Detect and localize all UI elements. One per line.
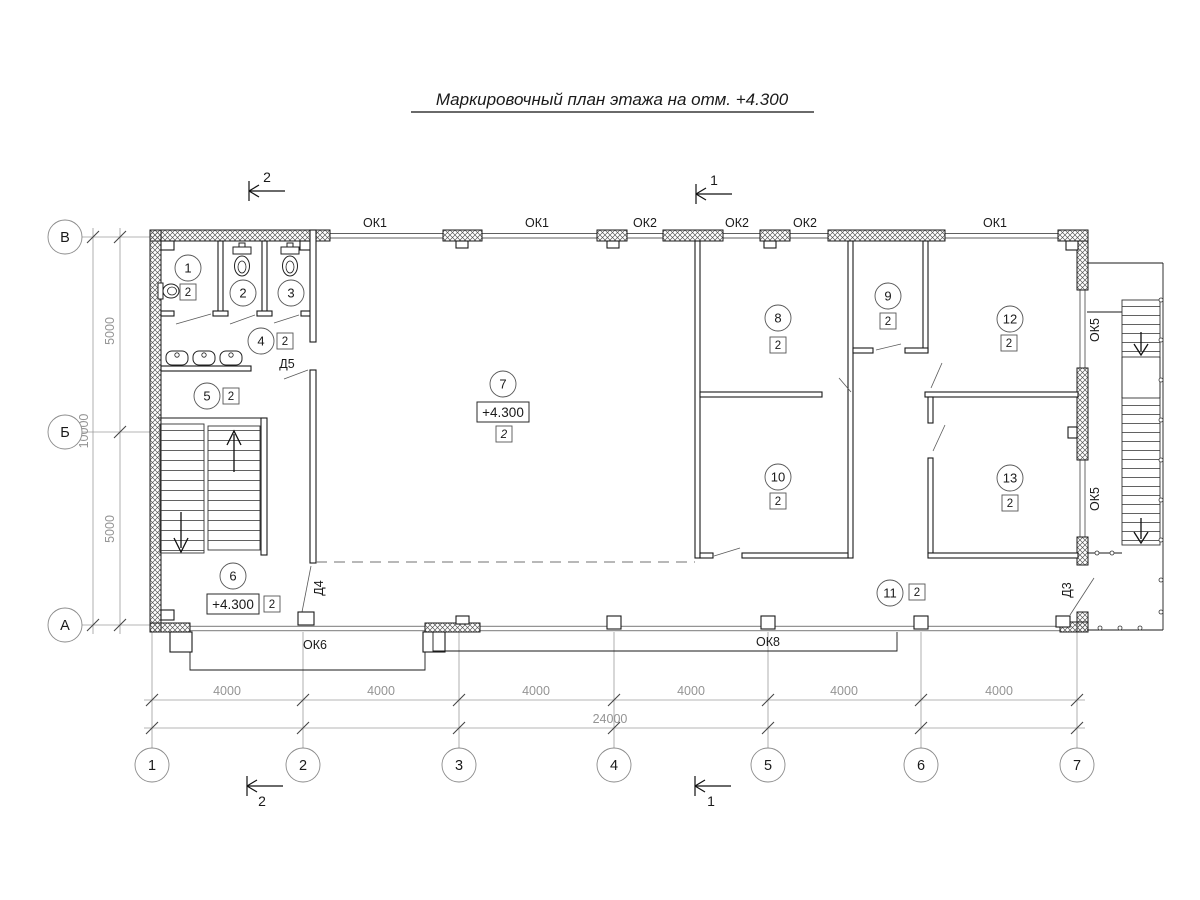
pier [1066, 241, 1078, 250]
bottom-wall-seg [150, 623, 190, 632]
svg-text:5: 5 [764, 758, 772, 774]
toilet-icon [281, 243, 299, 276]
window-label-ok2: ОК2 [793, 216, 817, 230]
svg-text:7: 7 [499, 377, 506, 392]
svg-text:3: 3 [287, 286, 294, 301]
pier [764, 241, 776, 248]
svg-text:2: 2 [1006, 338, 1012, 350]
room-label-10: 10 2 [765, 464, 791, 509]
window-label-ok6: ОК6 [303, 638, 327, 652]
svg-text:2: 2 [269, 599, 275, 611]
door-leaf-d3 [1056, 616, 1070, 627]
top-wall-pier [597, 230, 627, 241]
column [761, 616, 775, 629]
svg-text:5: 5 [203, 389, 210, 404]
window-label-ok1: ОК1 [983, 216, 1007, 230]
sink-icon [166, 351, 188, 365]
right-wall-seg [1077, 368, 1088, 460]
pier [161, 241, 174, 250]
svg-text:2: 2 [239, 286, 246, 301]
window-label-ok1: ОК1 [525, 216, 549, 230]
top-wall-corner [1058, 230, 1088, 241]
svg-text:3: 3 [455, 758, 463, 774]
svg-text:2: 2 [228, 391, 234, 403]
svg-text:В: В [60, 230, 70, 246]
section-mark-2-top: 2 [249, 169, 285, 201]
svg-text:4: 4 [257, 334, 264, 349]
axis-col-6: 6 [904, 748, 938, 782]
svg-text:2: 2 [914, 587, 920, 599]
section-mark-2-bottom: 2 [247, 776, 283, 809]
svg-text:10: 10 [771, 470, 785, 485]
room-label-8: 8 2 [765, 305, 791, 353]
floor-plan-svg: Маркировочный план этажа на отм. +4.300 … [0, 0, 1200, 900]
section-mark-1-bottom: 1 [695, 776, 731, 809]
dim-4000-1: 4000 [213, 684, 241, 698]
drawing-sheet: Маркировочный план этажа на отм. +4.300 … [0, 0, 1200, 900]
section-mark-1-top: 1 [696, 172, 732, 204]
door-label-d5: Д5 [279, 357, 294, 371]
opening-labels: ОК1 ОК1 ОК2 ОК2 ОК2 ОК1 ОК5 ОК5 ОК6 ОК8 … [279, 216, 1102, 652]
room-label-13: 13 2 [997, 465, 1023, 511]
window-label-ok2: ОК2 [633, 216, 657, 230]
svg-text:2: 2 [263, 169, 271, 185]
svg-text:2: 2 [299, 758, 307, 774]
dim-24000-total: 24000 [593, 712, 628, 726]
svg-text:12: 12 [1003, 312, 1017, 327]
pier [1068, 427, 1077, 438]
svg-text:13: 13 [1003, 471, 1017, 486]
svg-text:1: 1 [148, 758, 156, 774]
svg-text:2: 2 [185, 287, 191, 299]
porch-and-canopy [170, 632, 897, 670]
window-label-ok1: ОК1 [363, 216, 387, 230]
sink-icon [220, 351, 242, 365]
elevation-mark: +4.300 [482, 405, 524, 420]
room-label-9: 9 2 [875, 283, 901, 329]
toilet-icon [158, 283, 179, 299]
stair-left [158, 418, 261, 553]
axis-col-7: 7 [1060, 748, 1094, 782]
svg-text:2: 2 [775, 496, 781, 508]
room-label-3: 3 [278, 280, 304, 306]
top-wall-pier [443, 230, 482, 241]
svg-text:8: 8 [774, 311, 781, 326]
dim-5000-lower: 5000 [103, 515, 117, 543]
svg-text:2: 2 [775, 340, 781, 352]
svg-text:6: 6 [917, 758, 925, 774]
top-wall-seg [150, 230, 330, 241]
svg-text:1: 1 [184, 261, 191, 276]
window-label-ok5: ОК5 [1088, 318, 1102, 342]
interior-partitions [161, 230, 1078, 563]
room-label-6: 6 +4.300 2 [207, 563, 280, 614]
axis-row-Bb: Б [48, 415, 82, 449]
room-label-12: 12 2 [997, 306, 1023, 351]
axis-col-2: 2 [286, 748, 320, 782]
axis-row-A: А [48, 608, 82, 642]
svg-text:1: 1 [710, 172, 718, 188]
sink-icon [193, 351, 215, 365]
room-label-11: 11 2 [877, 580, 925, 606]
svg-text:2: 2 [885, 316, 891, 328]
svg-text:2: 2 [500, 429, 508, 441]
stair-flight-down [160, 424, 204, 553]
dim-4000-6: 4000 [985, 684, 1013, 698]
dim-5000-upper: 5000 [103, 317, 117, 345]
toilet-icon [233, 243, 251, 276]
svg-text:11: 11 [883, 586, 897, 601]
axis-row-B: В [48, 220, 82, 254]
porch-column [423, 632, 445, 652]
window-glazing [190, 234, 1085, 631]
column [607, 616, 621, 629]
room-label-4: 4 2 [248, 328, 293, 354]
svg-text:Б: Б [60, 425, 70, 441]
grid-and-dimensions: 5000 5000 10000 В Б А [48, 220, 1094, 782]
dim-4000-3: 4000 [522, 684, 550, 698]
svg-text:А: А [60, 618, 70, 634]
elevation-mark: +4.300 [212, 597, 254, 612]
window-label-ok8: ОК8 [756, 635, 780, 649]
svg-text:4: 4 [610, 758, 618, 774]
door-label-d3: Д3 [1060, 582, 1074, 597]
column [914, 616, 928, 629]
room-label-5: 5 2 [194, 383, 239, 409]
section-marks: 2 1 2 1 [247, 169, 732, 809]
axis-col-1: 1 [135, 748, 169, 782]
porch-column [170, 632, 192, 652]
dim-4000-5: 4000 [830, 684, 858, 698]
pier [161, 610, 174, 620]
pier [456, 241, 468, 248]
svg-text:2: 2 [282, 336, 288, 348]
right-wall-seg [1077, 241, 1088, 290]
svg-text:9: 9 [884, 289, 891, 304]
pier [456, 616, 469, 624]
dim-4000-4: 4000 [677, 684, 705, 698]
pier [607, 241, 619, 248]
top-wall-seg [663, 230, 723, 241]
svg-text:1: 1 [707, 793, 715, 809]
svg-text:2: 2 [258, 793, 266, 809]
svg-text:6: 6 [229, 569, 236, 584]
drawing-title: Маркировочный план этажа на отм. +4.300 [436, 90, 789, 109]
room-labels: 1 2 2 3 4 2 5 2 6 +4.300 2 7 +4.300 2 8 [175, 255, 1023, 614]
door-label-d4: Д4 [312, 580, 326, 595]
window-label-ok2: ОК2 [725, 216, 749, 230]
room-label-2: 2 [230, 280, 256, 306]
axis-col-5: 5 [751, 748, 785, 782]
axis-col-3: 3 [442, 748, 476, 782]
room-label-7: 7 +4.300 2 [477, 371, 529, 442]
right-wall-seg [1077, 537, 1088, 565]
door-leaf-d4 [298, 612, 314, 625]
axis-col-4: 4 [597, 748, 631, 782]
svg-text:2: 2 [1007, 498, 1013, 510]
dim-4000-2: 4000 [367, 684, 395, 698]
svg-text:7: 7 [1073, 758, 1081, 774]
window-label-ok5: ОК5 [1088, 487, 1102, 511]
bottom-wall-seg [425, 623, 480, 632]
top-wall-seg [828, 230, 945, 241]
title-block: Маркировочный план этажа на отм. +4.300 [411, 90, 814, 112]
top-wall-pier [760, 230, 790, 241]
